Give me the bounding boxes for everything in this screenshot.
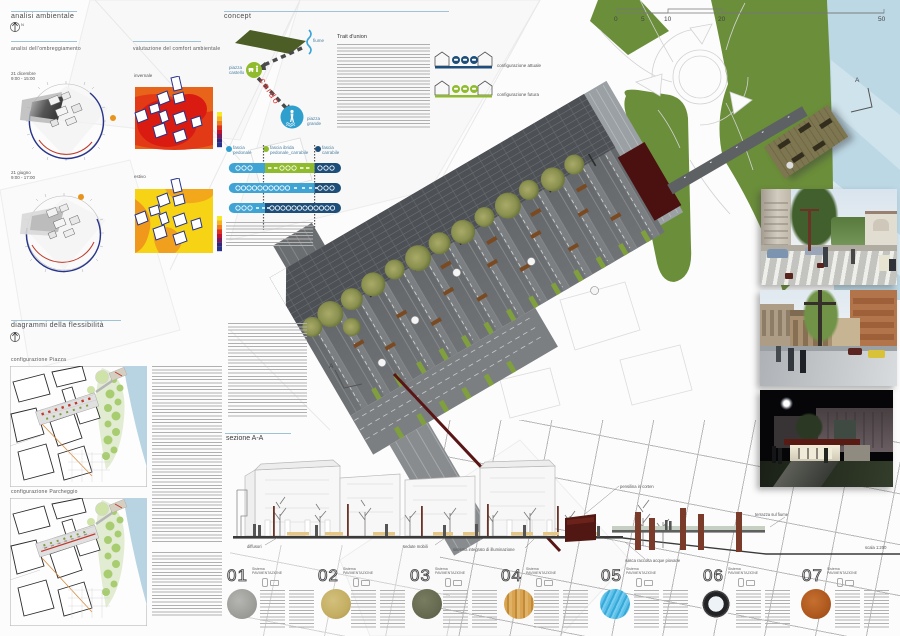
svg-text:01: 01 (227, 566, 248, 585)
svg-text:03: 03 (410, 566, 431, 585)
svg-text:02: 02 (318, 566, 339, 585)
svg-text:50: 50 (878, 16, 886, 23)
svg-text:scala 1:200: scala 1:200 (865, 545, 887, 550)
svg-text:10: 10 (664, 16, 672, 23)
svg-text:pensilina in corten: pensilina in corten (620, 484, 654, 489)
svg-text:04: 04 (501, 566, 522, 585)
svg-text:N: N (21, 22, 24, 27)
svg-text:sistema integrato di illuminaz: sistema integrato di illuminazione (453, 547, 515, 552)
svg-text:20: 20 (718, 16, 726, 23)
svg-text:terrazza sul fiume: terrazza sul fiume (755, 512, 789, 517)
svg-text:A: A (855, 77, 860, 84)
svg-text:0: 0 (614, 16, 618, 23)
svg-text:vasca raccolta acque piovane: vasca raccolta acque piovane (625, 558, 681, 563)
svg-text:07: 07 (802, 566, 823, 585)
svg-text:5: 5 (641, 16, 645, 23)
svg-text:06: 06 (703, 566, 724, 585)
svg-text:diffusori: diffusori (247, 544, 262, 549)
svg-text:sedute mobili: sedute mobili (403, 544, 428, 549)
svg-text:05: 05 (601, 566, 622, 585)
svg-text:A: A (329, 363, 334, 370)
